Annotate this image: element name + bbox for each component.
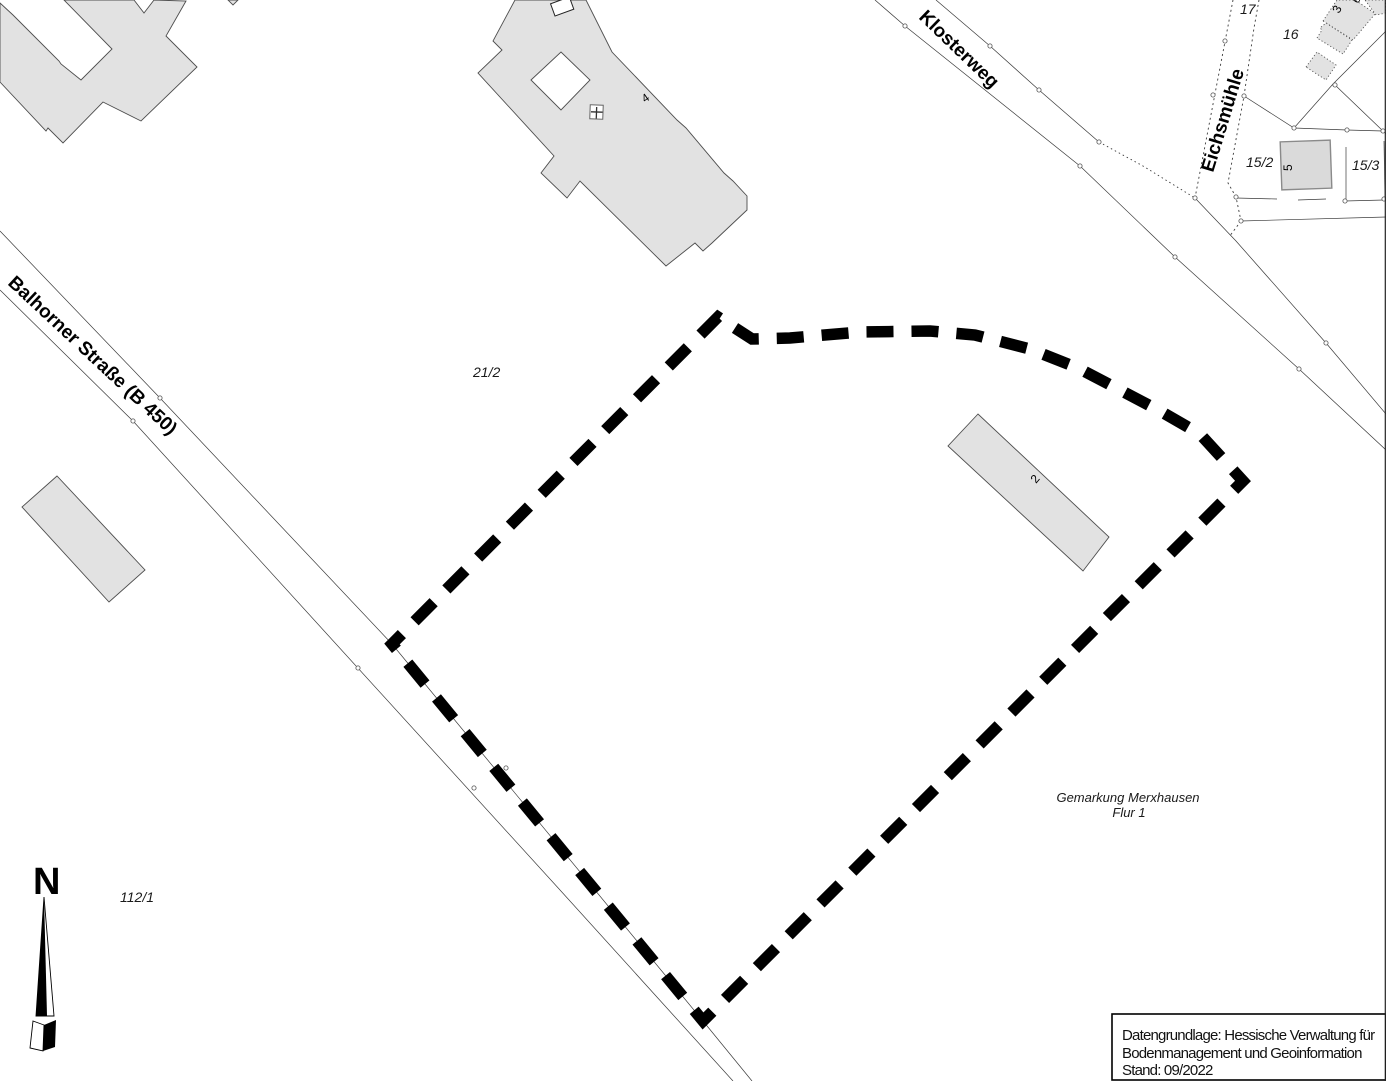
svg-text:15/3: 15/3 [1352,157,1379,173]
svg-text:112/1: 112/1 [120,889,154,905]
svg-text:Stand: 09/2022: Stand: 09/2022 [1122,1062,1213,1079]
svg-text:Eichsmühle: Eichsmühle [1198,66,1249,174]
svg-text:Gemarkung Merxhausen: Gemarkung Merxhausen [1056,790,1199,805]
svg-text:Balhorner Straße (B 450): Balhorner Straße (B 450) [4,272,181,439]
svg-text:17: 17 [1240,1,1257,17]
svg-text:Flur 1: Flur 1 [1112,805,1145,820]
svg-text:15/2: 15/2 [1246,154,1273,170]
svg-text:21/2: 21/2 [472,364,500,380]
svg-text:N: N [33,861,60,903]
svg-text:16: 16 [1283,26,1299,42]
svg-text:Datengrundlage: Hessische Verw: Datengrundlage: Hessische Verwaltung für [1122,1027,1375,1044]
svg-text:5: 5 [1281,164,1295,171]
svg-text:Bodenmanagement und Geoinforma: Bodenmanagement und Geoinformation [1122,1045,1362,1062]
